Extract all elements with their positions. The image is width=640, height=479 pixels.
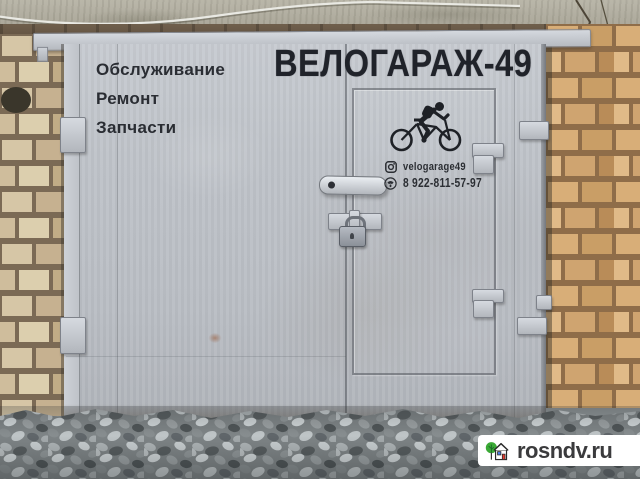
service-item: Запчасти xyxy=(96,113,225,142)
panel-seam xyxy=(514,44,515,420)
hinge-left-bottom xyxy=(60,317,86,354)
services-list: Обслуживание Ремонт Запчасти xyxy=(96,55,225,142)
rosndv-logo xyxy=(485,437,512,464)
wicket-hinge-bottom-block xyxy=(473,300,494,318)
hinge-right-top xyxy=(519,121,549,140)
rail-bracket xyxy=(37,47,48,62)
garage-title: ВЕЛОГАРАЖ-49 xyxy=(274,48,558,81)
phone-number: 8 922-811-57-97 xyxy=(403,176,482,190)
garage-door-photo: Обслуживание Ремонт Запчасти ВЕЛОГАРАЖ-4… xyxy=(0,0,640,479)
watermark-site-label: rosndv.ru xyxy=(517,435,612,466)
phone-line: 8 922-811-57-97 xyxy=(384,176,499,190)
handle-hole xyxy=(328,181,335,188)
hinge-right-tab xyxy=(536,295,552,310)
hinge-left-top xyxy=(60,117,86,153)
padlock xyxy=(339,226,366,247)
service-item: Ремонт xyxy=(96,84,225,113)
phone-icon xyxy=(384,177,397,190)
keyhole xyxy=(350,233,354,239)
brick-wall-right xyxy=(546,24,640,408)
instagram-line: velogarage49 xyxy=(385,161,477,173)
service-item: Обслуживание xyxy=(96,55,225,84)
panel-seam xyxy=(66,356,346,357)
instagram-handle: velogarage49 xyxy=(403,161,466,173)
instagram-icon xyxy=(385,161,397,173)
door-right-edge xyxy=(541,44,546,420)
hinge-right-bottom xyxy=(517,317,547,335)
cyclist-icon xyxy=(389,99,465,153)
watermark-badge: rosndv.ru xyxy=(478,435,640,466)
door-handle xyxy=(319,175,387,195)
door-frame-left xyxy=(64,44,80,420)
